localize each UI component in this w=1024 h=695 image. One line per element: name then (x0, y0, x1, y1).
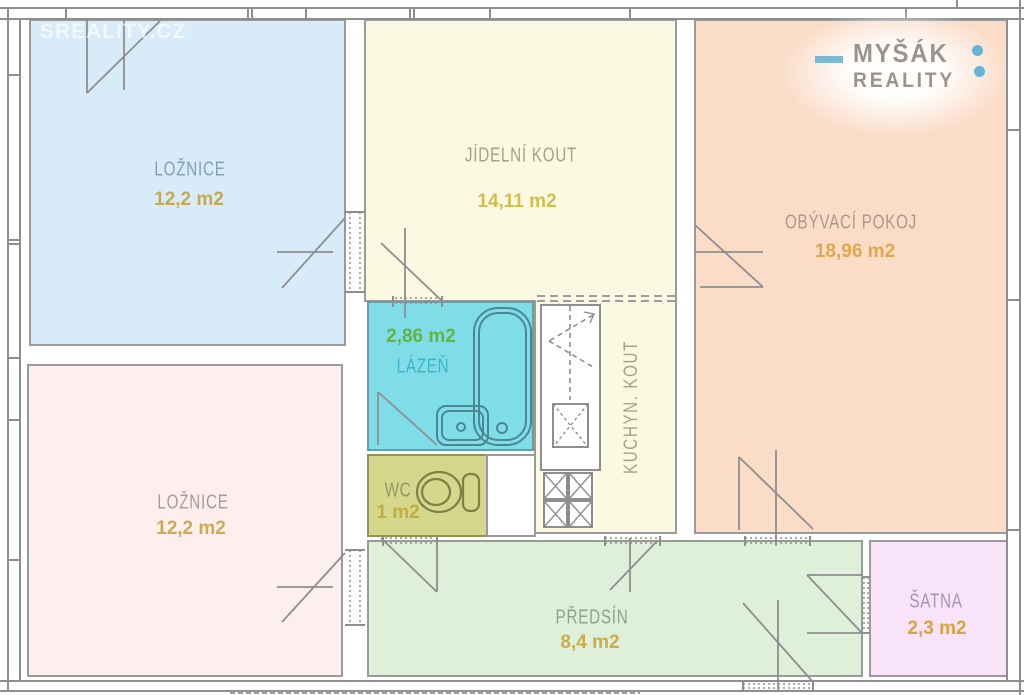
bathroom-label: LÁZEŇ (397, 356, 450, 379)
agency-logo: MYŠÁK REALITY (853, 38, 964, 93)
room-bathroom (368, 302, 533, 450)
floor-plan-image: SREALITY.CZ MYŠÁK REALITY LOŽNICE 12,2 m… (0, 0, 1024, 695)
kitchen-counter (541, 305, 600, 470)
wc-label: WC (385, 480, 412, 503)
closet-area: 2,3 m2 (907, 618, 966, 640)
logo-word-1: MYŠÁK (853, 38, 955, 69)
hallway-label: PŘEDSÍN (556, 607, 629, 630)
dining-area: 14,11 m2 (477, 191, 556, 213)
bathroom-area: 2,86 m2 (386, 326, 456, 348)
bedroom-bottom-area: 12,2 m2 (156, 518, 226, 540)
utility-nook (487, 455, 535, 536)
closet-label: ŠATNA (909, 591, 962, 614)
bedroom-bottom-label: LOŽNICE (157, 492, 228, 515)
living-label: OBÝVACÍ POKOJ (785, 212, 917, 235)
wc-area: 1 m2 (376, 502, 419, 524)
bedroom-top-label: LOŽNICE (154, 159, 225, 182)
dining-label: JÍDELNÍ KOUT (465, 145, 577, 168)
kitchen-label: KUCHYN. KOUT (621, 340, 643, 474)
logo-dot-icon (972, 45, 983, 56)
sreality-watermark: SREALITY.CZ (40, 20, 186, 44)
living-area: 18,96 m2 (815, 241, 895, 263)
logo-dot-icon (974, 66, 985, 77)
stove-icon (544, 473, 592, 527)
logo-word-2: REALITY (853, 69, 955, 93)
bedroom-top-area: 12,2 m2 (154, 189, 224, 211)
logo-dash-icon (815, 56, 843, 63)
room-bedroom-top (30, 20, 345, 345)
hallway-area: 8,4 m2 (560, 632, 619, 654)
